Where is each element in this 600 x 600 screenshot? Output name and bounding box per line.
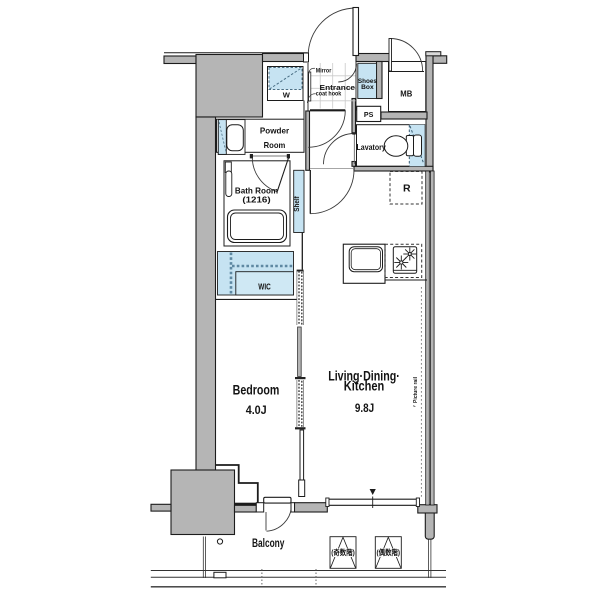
svg-text:Mirror: Mirror xyxy=(316,67,332,74)
svg-text:MB: MB xyxy=(400,88,412,98)
svg-text:Room: Room xyxy=(264,140,286,150)
svg-text:Box: Box xyxy=(361,84,374,91)
svg-text:PS: PS xyxy=(364,112,374,119)
svg-text:Bedroom: Bedroom xyxy=(233,381,280,397)
svg-text:Balcony: Balcony xyxy=(252,538,285,550)
svg-text:4.0J: 4.0J xyxy=(246,404,267,417)
svg-text:9.8J: 9.8J xyxy=(355,402,374,415)
svg-text:WIC: WIC xyxy=(258,283,271,292)
svg-text:coat hook: coat hook xyxy=(316,91,342,98)
svg-text:Picture rail: Picture rail xyxy=(413,377,419,403)
svg-text:Kitchen: Kitchen xyxy=(344,378,384,394)
svg-text:(奇数階): (奇数階) xyxy=(331,548,355,557)
svg-text:Powder: Powder xyxy=(260,126,290,136)
svg-text:R: R xyxy=(403,182,411,194)
svg-text:Lavatory: Lavatory xyxy=(357,142,387,152)
svg-text:(1216): (1216) xyxy=(242,195,271,205)
svg-text:(偶数階): (偶数階) xyxy=(377,548,401,557)
svg-text:W: W xyxy=(283,91,291,100)
svg-text:Shelf: Shelf xyxy=(294,196,301,212)
